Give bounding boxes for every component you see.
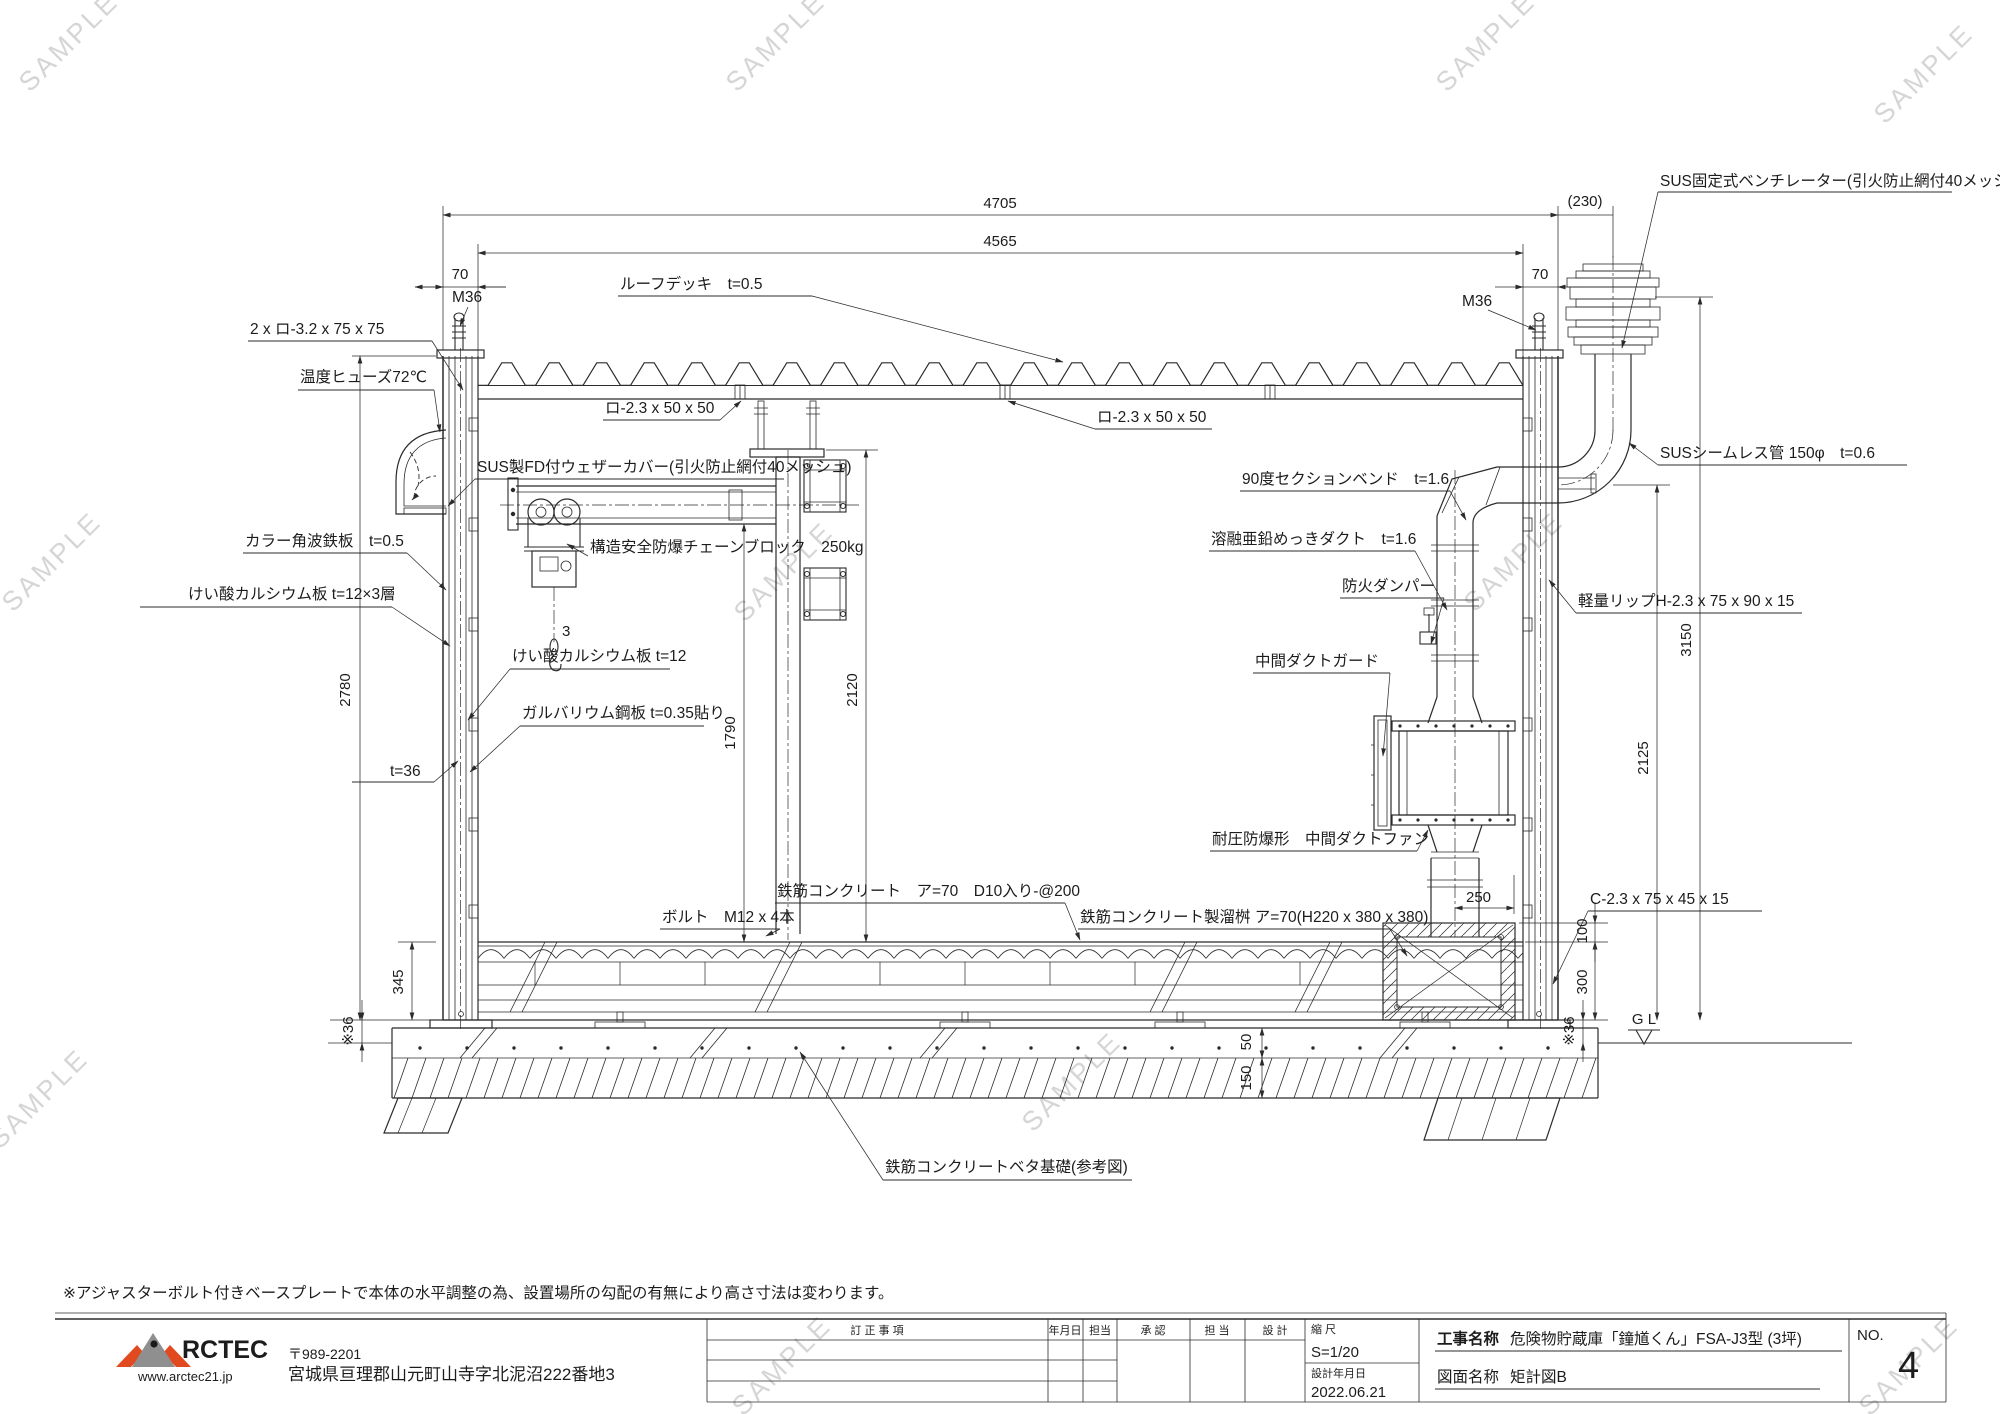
scale-label: 縮 尺 xyxy=(1311,1322,1336,1336)
label-rc-pit: 鉄筋コンクリート製溜桝 ア=70(H220 x 380 x 380) xyxy=(1080,908,1428,926)
label-c-channel: C-2.3 x 75 x 45 x 15 xyxy=(1590,891,1729,908)
label-duct-guard: 中間ダクトガード xyxy=(1255,652,1379,670)
watermark: SAMPLE xyxy=(1430,0,1541,97)
watermark: SAMPLE xyxy=(1868,18,1979,129)
sample-watermarks: SAMPLE SAMPLE SAMPLE SAMPLE SAMPLE SAMPL… xyxy=(0,0,1979,1414)
label-calcium3: けい酸カルシウム板 t=12×3層 xyxy=(188,585,396,603)
scale-value: S=1/20 xyxy=(1311,1344,1359,1361)
design-col-header: 設 計 xyxy=(1262,1323,1287,1337)
gl-marker: G L xyxy=(1628,1011,1660,1044)
project-label: 工事名称 xyxy=(1437,1329,1500,1348)
sheet-no-value: 4 xyxy=(1898,1345,1919,1387)
top-dimensions: 4705 4565 (230) 70 70 xyxy=(415,193,1613,356)
roof-deck xyxy=(478,362,1523,399)
fire-damper xyxy=(1420,608,1436,644)
label-zinc-duct: 溶融亜鉛めっきダクト t=1.6 xyxy=(1211,530,1416,548)
label-clip-right: ロ-2.3 x 50 x 50 xyxy=(1097,409,1207,426)
approval-col-header: 承 認 xyxy=(1140,1323,1165,1337)
drain-pit xyxy=(1383,923,1515,1020)
label-ventilator: SUS固定式ベンチレーター(引火防止網付40メッシュ) xyxy=(1660,172,2000,190)
left-wall xyxy=(430,313,492,1030)
company-name: RCTEC xyxy=(182,1336,268,1364)
dim-50: 50 xyxy=(1238,1034,1255,1051)
note-text: ※アジャスターボルト付きベースプレートで本体の水平調整の為、設置場所の勾配の有無… xyxy=(63,1284,893,1302)
label-weather-cover: SUS製FD付ウェザーカバー(引火防止網付40メッシュ) xyxy=(477,458,852,476)
watermark: SAMPLE xyxy=(13,0,124,97)
staff-col-header: 担当 xyxy=(1089,1323,1111,1337)
section-drawing-canvas: SAMPLE SAMPLE SAMPLE SAMPLE SAMPLE SAMPL… xyxy=(0,0,2000,1414)
company-postal: 〒989-2201 xyxy=(288,1346,361,1362)
dim-4565: 4565 xyxy=(983,233,1016,250)
sheet-label: 図面名称 xyxy=(1437,1368,1499,1386)
label-bend90: 90度セクションベンド t=1.6 xyxy=(1242,470,1449,488)
chain-falls-label: 3 xyxy=(562,623,570,640)
dim-70-left: 70 xyxy=(452,266,469,283)
right-wall-girts xyxy=(1523,418,1532,918)
watermark: SAMPLE xyxy=(726,1310,837,1414)
dim-2120: 2120 xyxy=(844,673,861,706)
revision-header: 訂 正 事 項 xyxy=(850,1323,903,1337)
label-bolt: ボルト M12 x 4本 xyxy=(662,908,795,926)
watermark: SAMPLE xyxy=(728,516,839,627)
label-color-sheet: カラー角波鉄板 t=0.5 xyxy=(245,532,404,550)
dim-345: 345 xyxy=(390,969,407,994)
duct-guard-panel xyxy=(1374,716,1391,830)
dim-2125: 2125 xyxy=(1635,741,1652,774)
sheet-no-label: NO. xyxy=(1857,1327,1884,1344)
dim-250: 250 xyxy=(1466,889,1491,906)
label-seamless: SUSシームレス管 150φ t=0.6 xyxy=(1660,444,1875,462)
rctec-logo-icon xyxy=(116,1333,191,1367)
label-rc-slab: 鉄筋コンクリート ア=70 D10入り-@200 xyxy=(777,882,1080,900)
dim-4705: 4705 xyxy=(983,195,1016,212)
left-wall-girts xyxy=(469,418,478,918)
dim-230: (230) xyxy=(1567,193,1602,210)
chain-hoist-assembly: 3 2120 1790 xyxy=(500,401,878,942)
cad-drawing-page: SAMPLE SAMPLE SAMPLE SAMPLE SAMPLE SAMPL… xyxy=(0,0,2000,1414)
design-date-label: 設計年月日 xyxy=(1311,1366,1366,1380)
dim-star36-left: ※36 xyxy=(340,1016,357,1045)
watermark: SAMPLE xyxy=(0,506,107,617)
dim-2780: 2780 xyxy=(337,673,354,706)
label-fire-damper: 防火ダンパー xyxy=(1342,577,1435,595)
label-t36: t=36 xyxy=(390,763,421,780)
label-duct-fan: 耐圧防爆形 中間ダクトファン xyxy=(1212,829,1429,848)
date-col-header: 年月日 xyxy=(1049,1323,1082,1337)
label-clip-left: ロ-2.3 x 50 x 50 xyxy=(605,400,715,417)
ventilator-stack xyxy=(1558,256,1660,503)
label-roof-deck: ルーフデッキ t=0.5 xyxy=(620,274,762,293)
trolley-and-block: 3 xyxy=(524,499,584,671)
dim-300: 300 xyxy=(1574,969,1591,994)
weather-cover-hood xyxy=(396,430,446,514)
roof-clips xyxy=(735,385,1275,399)
label-m36-right: M36 xyxy=(1462,293,1492,310)
dim-150: 150 xyxy=(1238,1065,1255,1090)
sheet-value: 矩計図B xyxy=(1510,1368,1567,1386)
annotation-labels: SUS固定式ベンチレーター(引火防止網付40メッシュ) ルーフデッキ t=0.5… xyxy=(140,172,2000,1180)
design-date-value: 2022.06.21 xyxy=(1311,1384,1386,1401)
dim-3150: 3150 xyxy=(1678,623,1695,656)
label-galvalume: ガルバリウム鋼板 t=0.35貼り xyxy=(522,704,725,722)
company-address: 宮城県亘理郡山元町山寺字北泥沼222番地3 xyxy=(288,1365,615,1384)
label-calcium1: けい酸カルシウム板 t=12 xyxy=(512,647,686,665)
dim-star36-right: ※36 xyxy=(1561,1016,1578,1045)
staff2-col-header: 担 当 xyxy=(1204,1323,1229,1337)
label-m36-left: M36 xyxy=(452,289,482,306)
label-temp-fuse: 温度ヒューズ72℃ xyxy=(300,368,427,386)
watermark: SAMPLE xyxy=(0,1043,94,1154)
company-logo-block: RCTEC www.arctec21.jp 〒989-2201 宮城県亘理郡山元… xyxy=(116,1333,615,1384)
label-rc-foundation: 鉄筋コンクリートベタ基礎(参考図) xyxy=(885,1158,1128,1176)
watermark: SAMPLE xyxy=(720,0,831,97)
left-dimensions: 2780 345 ※36 xyxy=(330,356,436,1062)
gl-label: G L xyxy=(1632,1011,1656,1028)
company-url: www.arctec21.jp xyxy=(137,1369,233,1384)
right-wall xyxy=(1508,313,1570,1030)
label-light-lip: 軽量リップH-2.3 x 75 x 90 x 15 xyxy=(1578,592,1794,610)
label-chain-block: 構造安全防爆チェーンブロック 250kg xyxy=(590,537,864,556)
watermark: SAMPLE xyxy=(1458,506,1569,617)
duct-fan-assembly xyxy=(1371,716,1515,830)
project-value: 危険物貯蔵庫「鐘馗くん」FSA-J3型 (3坪) xyxy=(1510,1330,1802,1348)
dim-70-right: 70 xyxy=(1532,266,1549,283)
label-frame2x: 2 x ロ-3.2 x 75 x 75 xyxy=(250,321,384,338)
